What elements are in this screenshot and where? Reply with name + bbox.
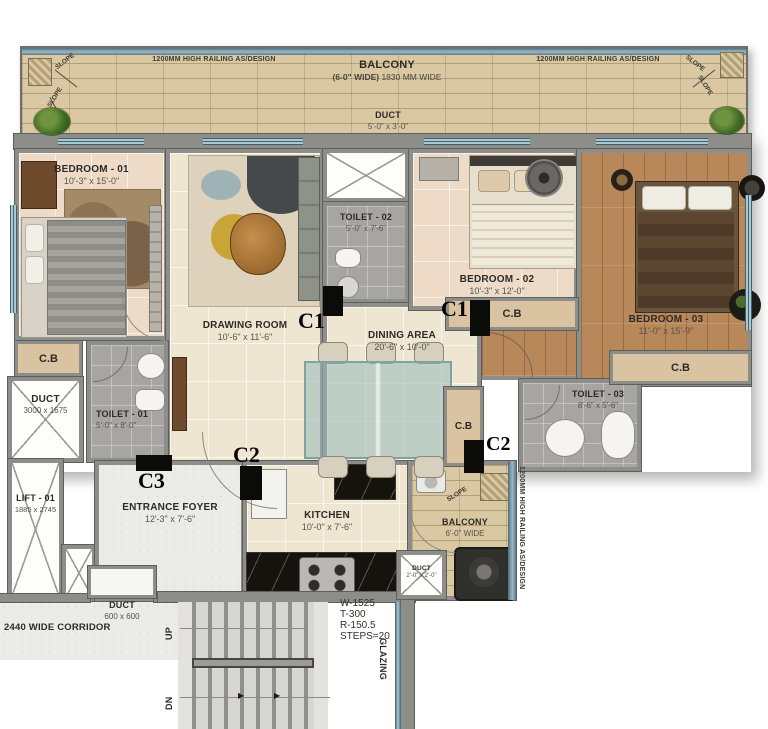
bedroom1-bed (21, 217, 127, 338)
toilet1-door-arc (93, 347, 128, 382)
bedroom3-side-table-top (739, 175, 765, 201)
glazing-label: GLAZING (378, 638, 388, 702)
toilet2-label: TOILET - 02 5'-0" x 7'-6" (327, 212, 405, 234)
duct-top-label: DUCT 5'-0" x 3'-0" (318, 110, 458, 132)
bedroom2-fan (527, 161, 561, 195)
drawing-console (172, 357, 187, 431)
bedroom2-bed (469, 155, 579, 269)
window-drawing (203, 138, 303, 145)
railing-label-side: 1200MM HIGH RAILING AS/DESIGN (518, 466, 525, 598)
toilet2-name: TOILET - 02 (327, 212, 405, 224)
foyer-dim: 12'-3" x 7'-6" (105, 514, 235, 526)
cb-bedroom2-label: C.B (503, 308, 522, 320)
balcony-top-dim-bold: (6-0" WIDE) (333, 72, 380, 82)
room-lift: LIFT - 01 1885 x 2745 (8, 459, 63, 600)
dining-dim: 20'-6" x 10'-0" (342, 342, 462, 354)
lift-label: LIFT - 01 1885 x 2745 (12, 493, 59, 514)
duct-left-dim: 3000 x 1675 (12, 406, 79, 416)
corridor-label: 2440 WIDE CORRIDOR (4, 622, 134, 634)
room-duct-top (323, 149, 409, 202)
bedroom3-name: BEDROOM - 03 (596, 313, 736, 326)
drain-hatch-left (28, 58, 52, 86)
duct-top-dim: 5'-0" x 3'-0" (318, 122, 458, 132)
room-bedroom2: BEDROOM - 02 10'-3" x 12'-0" (409, 149, 578, 310)
dining-chair-4 (318, 456, 348, 478)
balcony-drain-hatch (480, 473, 510, 501)
room-duct-bottom (88, 566, 156, 598)
foyer-name: ENTRANCE FOYER (105, 501, 235, 514)
duct-kitchen-dim: 2'-0" x 2'-0" (401, 573, 442, 581)
kitchen-dim: 10'-0" x 7'-6" (262, 522, 392, 534)
cb-bedroom3-label: C.B (671, 362, 690, 374)
bedroom2-name: BEDROOM - 02 (422, 273, 572, 286)
marker-c2-right: C2 (486, 434, 510, 454)
duct-left-label: DUCT 3000 x 1675 (12, 393, 79, 416)
toilet3-wc (601, 411, 635, 459)
marker-c1-right: C1 (441, 298, 468, 320)
cb-dining-label: C.B (455, 421, 472, 432)
room-toilet3: TOILET - 03 8'-6" x 5'-6" (519, 379, 641, 471)
drawing-coffee-table (230, 213, 286, 275)
cb-bedroom3: C.B (610, 351, 751, 384)
bedroom3-label: BEDROOM - 03 11'-0" x 15'-9" (596, 313, 736, 338)
column-c1-right (470, 300, 490, 336)
slope-label-balcony: SLOPE (446, 486, 468, 504)
column-c2-right (464, 440, 484, 473)
room-toilet1: TOILET - 01 5'-0" x 8'-0" (87, 341, 168, 462)
toilet3-name: TOILET - 03 (559, 389, 637, 401)
wall-stairs-right (401, 592, 414, 729)
room-duct-left: DUCT 3000 x 1675 (8, 377, 83, 462)
column-c2-mid (240, 466, 262, 500)
toilet3-label: TOILET - 03 8'-6" x 5'-6" (559, 389, 637, 411)
railing-label-right: 1200MM HIGH RAILING AS/DESIGN (492, 55, 704, 64)
bedroom1-name: BEDROOM - 01 (19, 163, 164, 176)
bedroom1-blanket (47, 220, 126, 335)
stair-specs: W-1525 T-300 R-150.5 STEPS=20 (340, 598, 390, 642)
toilet1-basin (137, 353, 165, 379)
bedroom1-pillow-2 (25, 256, 44, 284)
bedroom2-pillow-1 (478, 170, 510, 192)
room-drawing: DRAWING ROOM 10'-6" x 11'-6" (166, 149, 324, 465)
kitchen-label: KITCHEN 10'-0" x 7'-6" (262, 509, 392, 534)
railing-label-left: 1200MM HIGH RAILING AS/DESIGN (108, 55, 320, 64)
balcony-side-dim: 6'-0" WIDE (420, 529, 510, 539)
window-bedroom2 (424, 138, 530, 145)
dining-chair-5 (366, 456, 396, 478)
marker-c3: C3 (138, 470, 165, 492)
duct-bottom-name: DUCT (88, 600, 156, 612)
dining-table (304, 361, 452, 459)
duct-bottom-dim: 600 x 600 (88, 612, 156, 622)
bedroom1-label: BEDROOM - 01 10'-3" x 15'-0" (19, 163, 164, 188)
bedroom3-pillow-1 (642, 186, 686, 210)
dining-label: DINING AREA 20'-6" x 10'-0" (342, 329, 462, 354)
bedroom1-dim: 10'-3" x 15'-0" (19, 176, 164, 188)
toilet3-dim: 8'-6" x 5'-6" (559, 401, 637, 411)
bedroom2-nightstand (419, 157, 459, 181)
bedroom3-dim: 11'-0" x 15'-9" (596, 326, 736, 338)
washing-machine (454, 547, 516, 601)
room-duct-kitchen: DUCT 2'-0" x 2'-0" (397, 551, 446, 599)
up-line (180, 628, 308, 629)
dining-chair-6 (414, 456, 444, 478)
duct-top-name: DUCT (318, 110, 458, 122)
bedroom1-pillow-1 (25, 224, 44, 252)
window-left (10, 205, 17, 313)
slope-arrow-tl (55, 69, 78, 87)
toilet1-wc (135, 389, 165, 411)
foyer-label: ENTRANCE FOYER 12'-3" x 7'-6" (105, 501, 235, 526)
stair-spec-width: W-1525 (340, 598, 390, 609)
balcony-side-name: BALCONY (420, 517, 510, 529)
wall-corridor-top (0, 594, 90, 602)
lift-dim: 1885 x 2745 (12, 505, 59, 515)
drawing-dim: 10'-6" x 11'-6" (170, 332, 320, 344)
drain-hatch-right (720, 52, 744, 78)
toilet1-name: TOILET - 01 (96, 409, 168, 421)
marker-c1-left: C1 (298, 310, 325, 332)
toilet3-door-arc (525, 385, 560, 420)
bedroom2-blanket (472, 204, 574, 265)
duct-kitchen-name: DUCT (401, 565, 442, 573)
dn-arrow-1: ▶ (238, 691, 244, 700)
window-bedroom1 (58, 138, 144, 145)
dining-name: DINING AREA (342, 329, 462, 342)
balcony-top: 1200MM HIGH RAILING AS/DESIGN BALCONY (6… (20, 46, 748, 136)
toilet2-dim: 5'-0" x 7'-6" (327, 224, 405, 234)
bedroom3-lamp (611, 169, 633, 191)
balcony-top-dim-rest: 1830 MM WIDE (381, 72, 441, 82)
marker-c2-mid: C2 (233, 444, 260, 466)
stair-spec-riser: R-150.5 (340, 620, 390, 631)
duct-left-name: DUCT (12, 393, 79, 406)
bedroom3-pillow-2 (688, 186, 732, 210)
floor-plan: 1200MM HIGH RAILING AS/DESIGN BALCONY (6… (0, 0, 768, 729)
toilet1-dim: 5'-0" x 8'-0" (96, 421, 168, 431)
dn-line (180, 697, 330, 698)
plant-top-right (710, 107, 744, 134)
duct-bottom-label: DUCT 600 x 600 (88, 600, 156, 622)
bedroom3-blanket (638, 212, 734, 308)
stair-mid-rail (192, 658, 314, 668)
bedroom3-bed (635, 181, 739, 313)
cb-bedroom1: C.B (15, 341, 82, 376)
stair-spec-tread: T-300 (340, 609, 390, 620)
kitchen-stove (299, 557, 355, 597)
railing-band-side (508, 461, 516, 600)
rug-blob-blue (201, 170, 241, 200)
stairs-up-label: UP (164, 612, 174, 640)
kitchen-name: KITCHEN (262, 509, 392, 522)
plant-top-left (34, 108, 70, 135)
balcony-side-label: BALCONY 6'-0" WIDE (420, 517, 510, 539)
lift-name: LIFT - 01 (12, 493, 59, 505)
stairwell-floor (178, 602, 328, 729)
toilet1-label: TOILET - 01 5'-0" x 8'-0" (93, 409, 168, 431)
toilet3-basin (545, 419, 585, 457)
column-c1-left (323, 286, 343, 316)
bedroom2-headboard (470, 156, 576, 166)
toilet2-basin (335, 248, 361, 268)
window-right (745, 195, 752, 330)
bedroom2-label: BEDROOM - 02 10'-3" x 12'-0" (422, 273, 572, 298)
stairs-dn-label: DN (164, 684, 174, 710)
window-bedroom3 (596, 138, 708, 145)
balcony-top-label: BALCONY (6-0" WIDE) 1830 MM WIDE (320, 58, 454, 83)
balcony-top-name: BALCONY (320, 58, 454, 72)
drawing-sofa (298, 157, 320, 301)
dn-arrow-2: ▶ (274, 691, 280, 700)
glazing-strip (395, 602, 401, 729)
railing-band (22, 48, 746, 55)
duct-kitchen-label: DUCT 2'-0" x 2'-0" (401, 565, 442, 581)
washing-machine-door (469, 557, 499, 587)
cb-bedroom1-label: C.B (39, 353, 58, 365)
